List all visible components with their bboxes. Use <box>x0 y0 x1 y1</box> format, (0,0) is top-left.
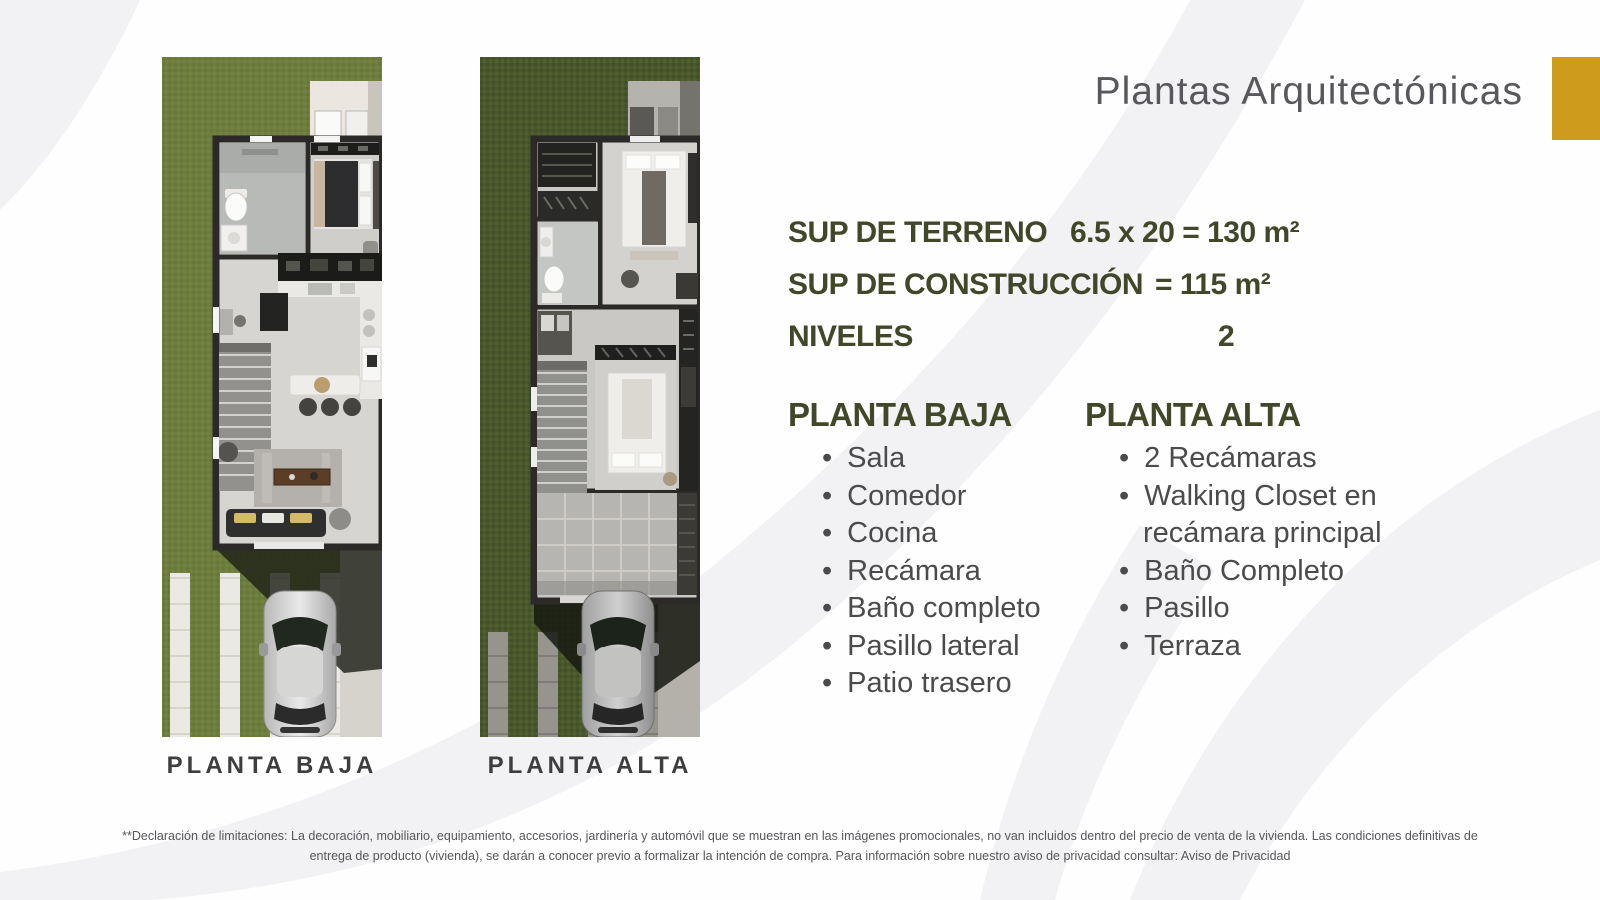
list-item: 2 Recámaras <box>1085 440 1455 478</box>
window-mark <box>314 136 340 142</box>
spec-label: NIVELES <box>788 320 1218 354</box>
list-item: Sala <box>788 440 1041 478</box>
list-item: Recámara <box>788 553 1041 591</box>
list-item: Pasillo lateral <box>788 628 1041 666</box>
service-patio <box>310 81 382 141</box>
patio-door <box>254 542 324 549</box>
spec-value: 2 <box>1218 320 1234 354</box>
list-item: Cocina <box>788 515 1041 553</box>
spec-value: = 115 m² <box>1155 268 1270 302</box>
window-mark <box>213 437 219 459</box>
planta-baja-heading: PLANTA BAJA <box>788 396 1041 434</box>
bathroom <box>538 222 598 305</box>
list-item: Baño completo <box>788 590 1041 628</box>
spec-label: SUP DE TERRENO <box>788 216 1070 250</box>
accent-square <box>1552 57 1600 140</box>
window-mark <box>250 136 272 142</box>
planta-alta-list: PLANTA ALTA 2 Recámaras Walking Closet e… <box>1085 396 1455 665</box>
closet <box>538 143 600 217</box>
roof-patio <box>628 81 700 141</box>
spec-row-construccion: SUP DE CONSTRUCCIÓN = 115 m² <box>788 259 1299 311</box>
planta-baja-list: PLANTA BAJA Sala Comedor Cocina Recámara… <box>788 396 1041 703</box>
window-mark <box>630 136 660 142</box>
desk <box>220 309 233 335</box>
wardrobe-strip <box>679 309 698 491</box>
second-bedroom <box>595 345 677 490</box>
list-item: Pasillo <box>1085 590 1455 628</box>
list-item: Terraza <box>1085 628 1455 666</box>
stairs <box>537 361 587 493</box>
disclaimer-line-1: **Declaración de limitaciones: La decora… <box>0 826 1600 846</box>
planta-alta-caption: PLANTA ALTA <box>480 752 700 780</box>
planta-baja-floorplan <box>162 57 382 737</box>
surface-specs: SUP DE TERRENO 6.5 x 20 = 130 m² SUP DE … <box>788 207 1299 363</box>
list-item: Comedor <box>788 478 1041 516</box>
list-item: Baño Completo <box>1085 553 1455 591</box>
spec-label: SUP DE CONSTRUCCIÓN <box>788 268 1143 302</box>
bedroom <box>311 143 379 266</box>
planta-baja-items: Sala Comedor Cocina Recámara Baño comple… <box>788 440 1041 703</box>
car <box>259 591 341 737</box>
page-title: Plantas Arquitectónicas <box>1095 70 1523 114</box>
desk-chair <box>234 315 246 327</box>
list-item: Patio trasero <box>788 665 1041 703</box>
spec-row-niveles: NIVELES 2 <box>788 311 1299 363</box>
terrace <box>537 493 697 595</box>
spec-row-terreno: SUP DE TERRENO 6.5 x 20 = 130 m² <box>788 207 1299 259</box>
window-mark <box>213 307 219 333</box>
planta-alta-floorplan <box>480 57 700 737</box>
disclaimer-line-2: entrega de producto (vivienda), se darán… <box>0 846 1600 866</box>
list-item: Walking Closet en recámara principal <box>1085 478 1455 553</box>
hall-closet <box>538 311 572 355</box>
window-mark <box>531 387 537 411</box>
planta-baja-caption: PLANTA BAJA <box>162 752 382 780</box>
window-mark <box>531 447 537 467</box>
planta-alta-heading: PLANTA ALTA <box>1085 396 1455 434</box>
bathroom <box>220 143 305 254</box>
building <box>213 136 382 549</box>
planta-alta-items: 2 Recámaras Walking Closet en recámara p… <box>1085 440 1455 665</box>
building <box>531 136 700 603</box>
spec-value: 6.5 x 20 = 130 m² <box>1070 216 1299 250</box>
car <box>577 591 659 737</box>
disclaimer: **Declaración de limitaciones: La decora… <box>0 826 1600 866</box>
slide: Plantas Arquitectónicas <box>0 0 1600 900</box>
master-bedroom <box>603 143 698 304</box>
